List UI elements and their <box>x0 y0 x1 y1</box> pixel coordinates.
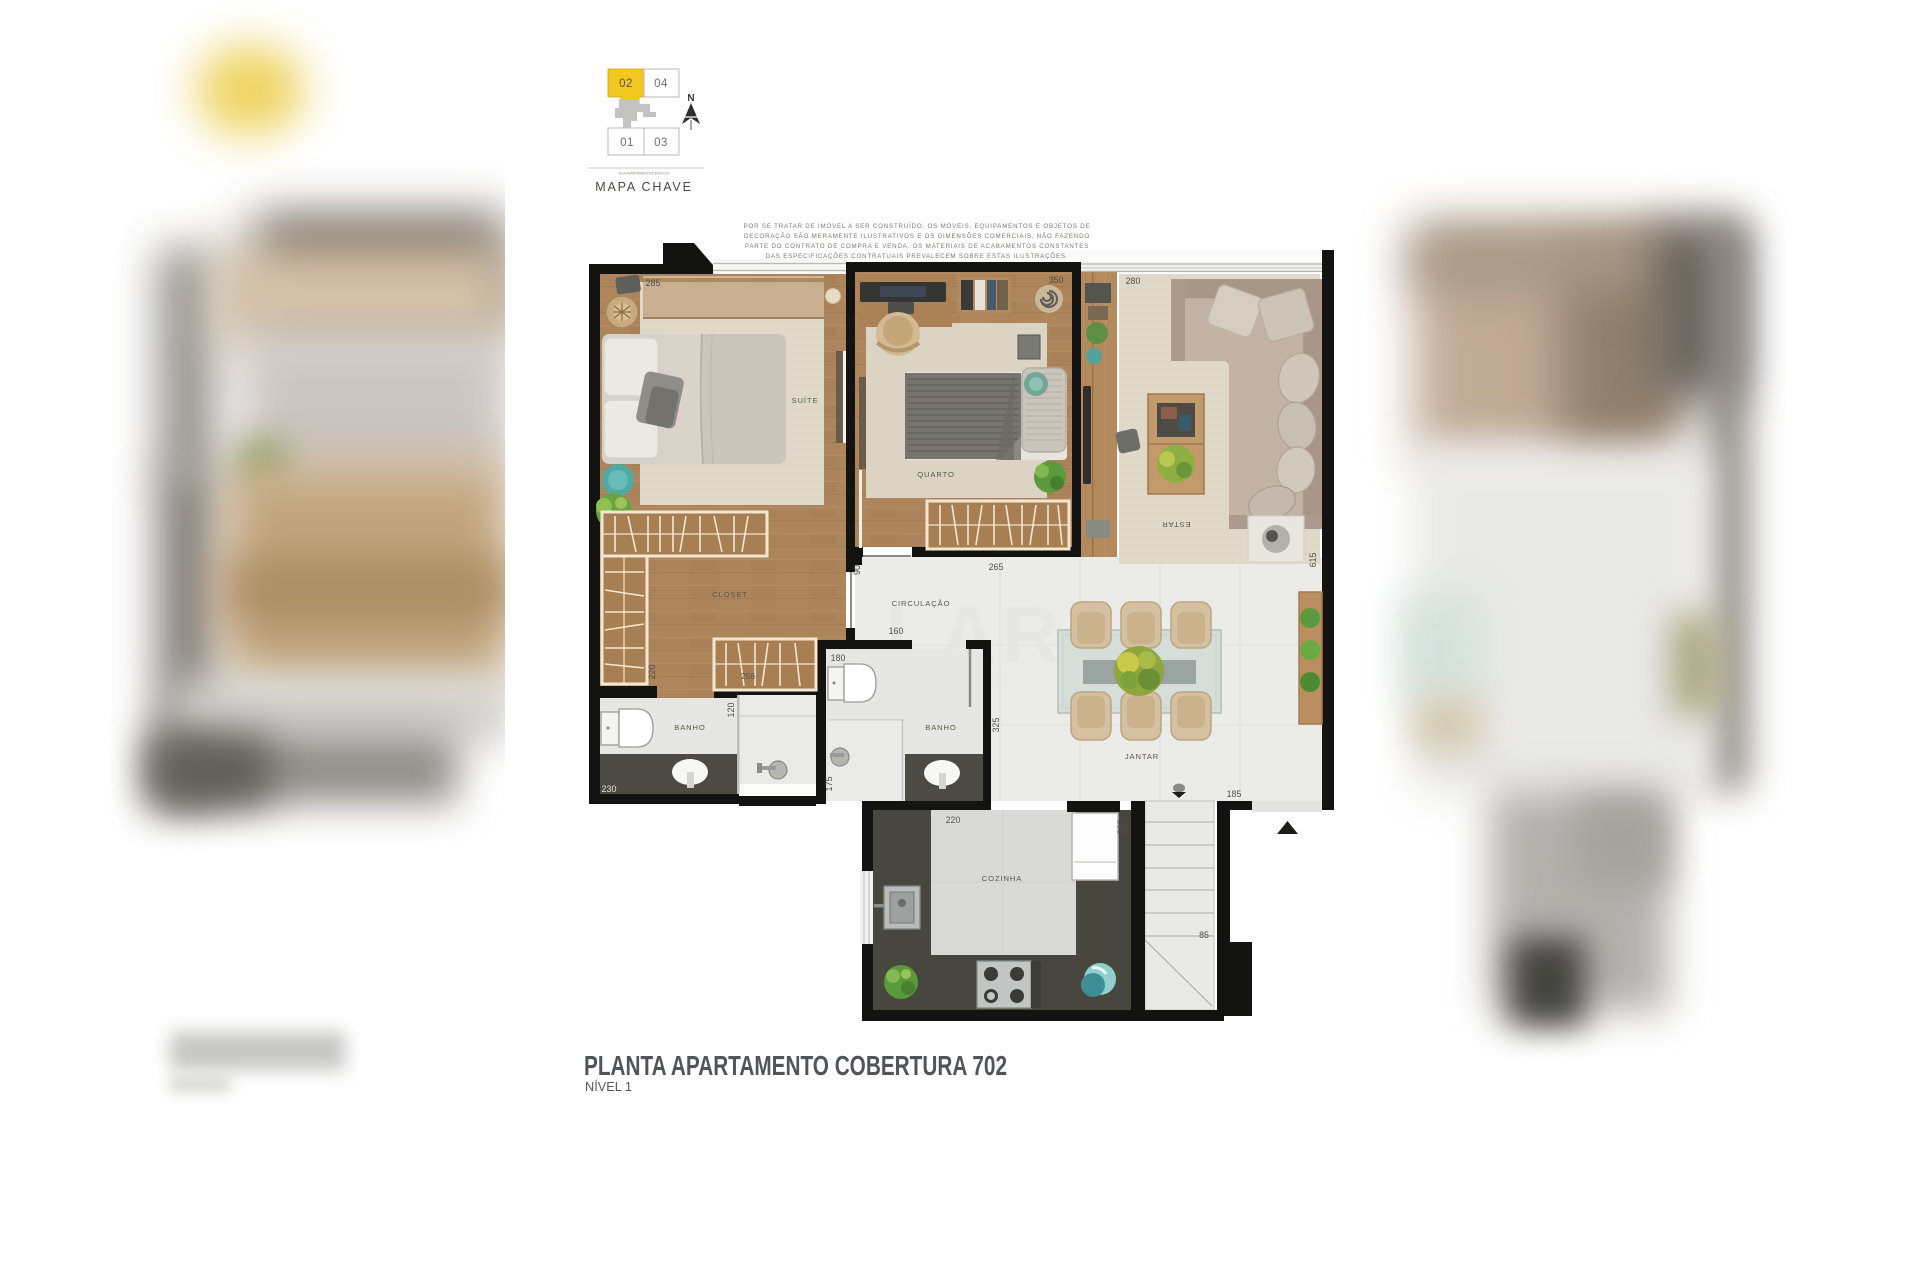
svg-text:01: 01 <box>620 137 634 149</box>
svg-text:185: 185 <box>1227 789 1242 799</box>
svg-text:N: N <box>687 93 694 104</box>
svg-text:265: 265 <box>989 562 1004 572</box>
svg-text:256: 256 <box>741 671 755 681</box>
svg-text:SUÍTE: SUÍTE <box>792 396 819 405</box>
svg-text:220: 220 <box>647 664 657 679</box>
svg-text:120: 120 <box>726 702 736 717</box>
svg-text:85: 85 <box>1199 930 1209 940</box>
svg-text:DECORAÇÃO SÃO MERAMENTE ILUSTR: DECORAÇÃO SÃO MERAMENTE ILUSTRATIVOS E O… <box>744 233 1090 240</box>
svg-text:160: 160 <box>889 626 904 636</box>
svg-text:BANHO: BANHO <box>925 723 957 732</box>
svg-text:JANTAR: JANTAR <box>1125 752 1159 761</box>
svg-text:220: 220 <box>946 815 961 825</box>
svg-text:POR SE TRATAR DE IMÓVEL A SER: POR SE TRATAR DE IMÓVEL A SER CONSTRUÍDO… <box>744 223 1091 230</box>
svg-text:233: 233 <box>1116 819 1126 834</box>
svg-text:CIRCULAÇÃO: CIRCULAÇÃO <box>892 599 951 608</box>
svg-text:03: 03 <box>654 137 668 149</box>
svg-text:280: 280 <box>1126 276 1141 286</box>
svg-text:90: 90 <box>852 565 862 575</box>
svg-text:325: 325 <box>991 718 1001 733</box>
svg-text:350: 350 <box>1049 275 1064 285</box>
svg-text:230: 230 <box>601 784 616 794</box>
svg-text:175: 175 <box>824 776 834 791</box>
svg-text:CLOSET: CLOSET <box>712 590 748 599</box>
svg-text:BANHO: BANHO <box>674 723 706 732</box>
svg-text:PARTE DO CONTRATO DE COMPRA E: PARTE DO CONTRATO DE COMPRA E VENDA. OS … <box>745 243 1089 250</box>
svg-text:04: 04 <box>654 78 668 90</box>
svg-text:RUA APARTAMENTOS EDIFICIO: RUA APARTAMENTOS EDIFICIO <box>619 172 670 176</box>
svg-text:MAPA CHAVE: MAPA CHAVE <box>595 180 692 194</box>
svg-text:DAS ESPECIFICAÇÕES CONTRATUAIS: DAS ESPECIFICAÇÕES CONTRATUAIS PREVALECE… <box>766 253 1069 260</box>
svg-text:COZINHA: COZINHA <box>982 874 1023 883</box>
svg-text:02: 02 <box>619 78 633 90</box>
svg-text:615: 615 <box>1308 553 1318 568</box>
svg-text:ESTAR: ESTAR <box>1161 520 1190 529</box>
svg-text:180: 180 <box>831 653 846 663</box>
svg-text:NÍVEL 1: NÍVEL 1 <box>585 1079 632 1094</box>
svg-text:PLANTA APARTAMENTO COBERTURA 7: PLANTA APARTAMENTO COBERTURA 702 <box>584 1050 1007 1081</box>
svg-text:QUARTO: QUARTO <box>917 470 955 479</box>
svg-text:285: 285 <box>646 278 661 288</box>
